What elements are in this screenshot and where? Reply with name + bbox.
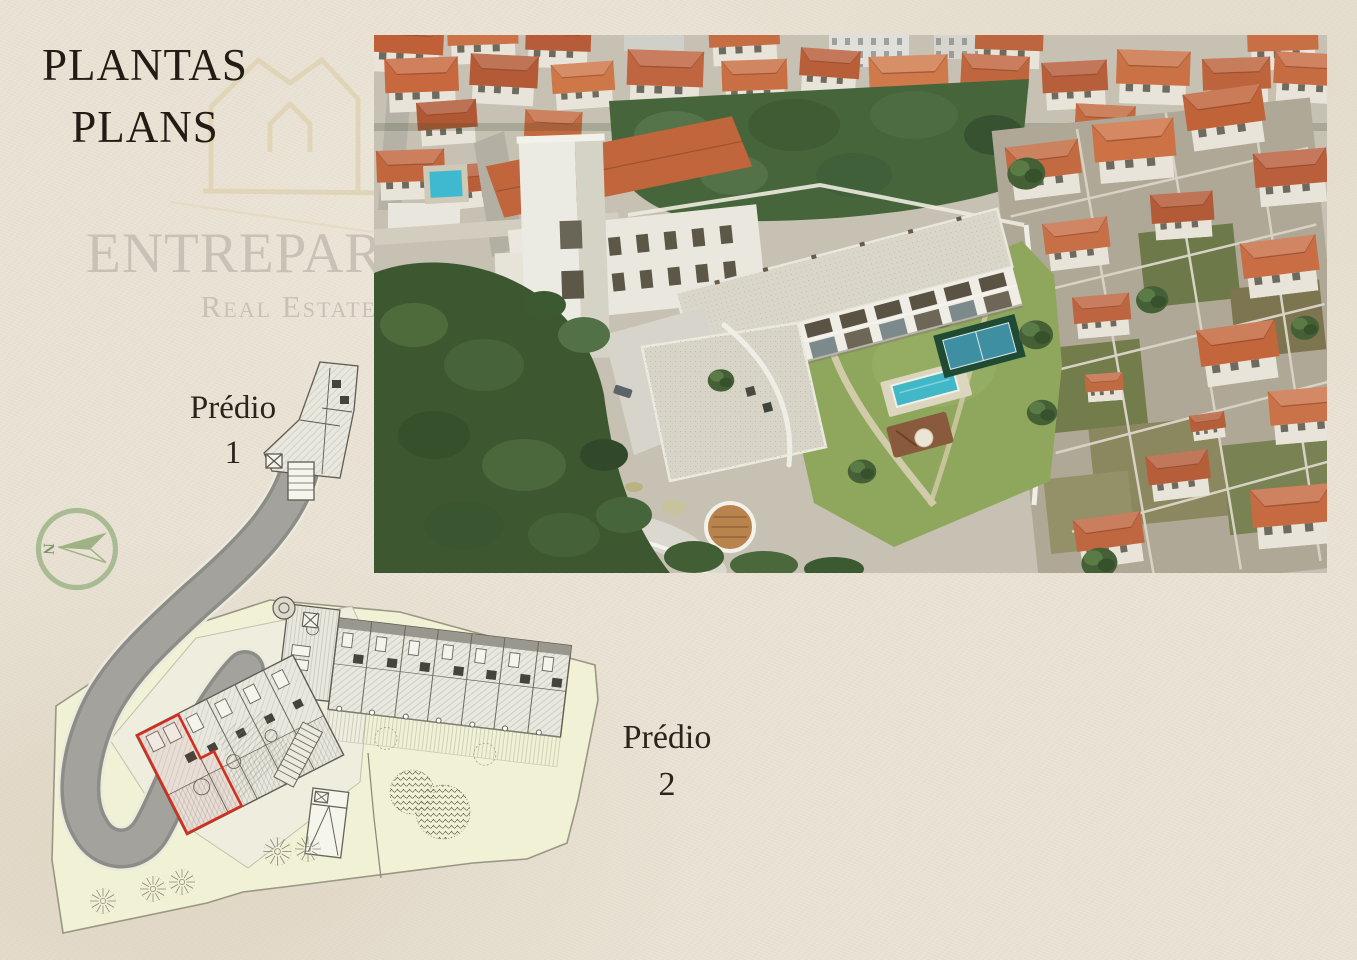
compass-needle-solid (58, 532, 107, 549)
label-predio-2-number: 2 (582, 761, 752, 808)
title-line-1: PLANTAS (38, 34, 252, 96)
compass-icon: N (26, 497, 130, 601)
logo-baseline (203, 191, 390, 193)
page-title: PLANTAS PLANS (38, 34, 252, 158)
label-predio-1-name: Prédio (148, 386, 318, 431)
plan-shaft (302, 612, 319, 628)
plan-shed (305, 788, 349, 858)
brand-watermark: ENTREPAREDES Real Estate (86, 224, 379, 346)
watermark-brand: ENTREPAREDES (86, 224, 379, 284)
label-predio-1-number: 1 (148, 431, 318, 476)
presentation-slide: PLANTAS PLANS ENTREPAREDES Real Estate (0, 0, 1357, 960)
label-predio-2-name: Prédio (582, 714, 752, 761)
logo-inner-house (270, 104, 310, 152)
aerial-photo (374, 35, 1327, 573)
compass-north-label: N (39, 543, 56, 556)
neighbor-pool (429, 170, 462, 198)
compass-needle-outline (58, 547, 106, 563)
watermark-tagline: Real Estate (86, 290, 379, 324)
plan-roundabout (273, 597, 295, 619)
label-predio-1: Prédio 1 (148, 386, 318, 476)
label-predio-2: Prédio 2 (582, 714, 752, 808)
title-line-2: PLANS (38, 96, 252, 158)
